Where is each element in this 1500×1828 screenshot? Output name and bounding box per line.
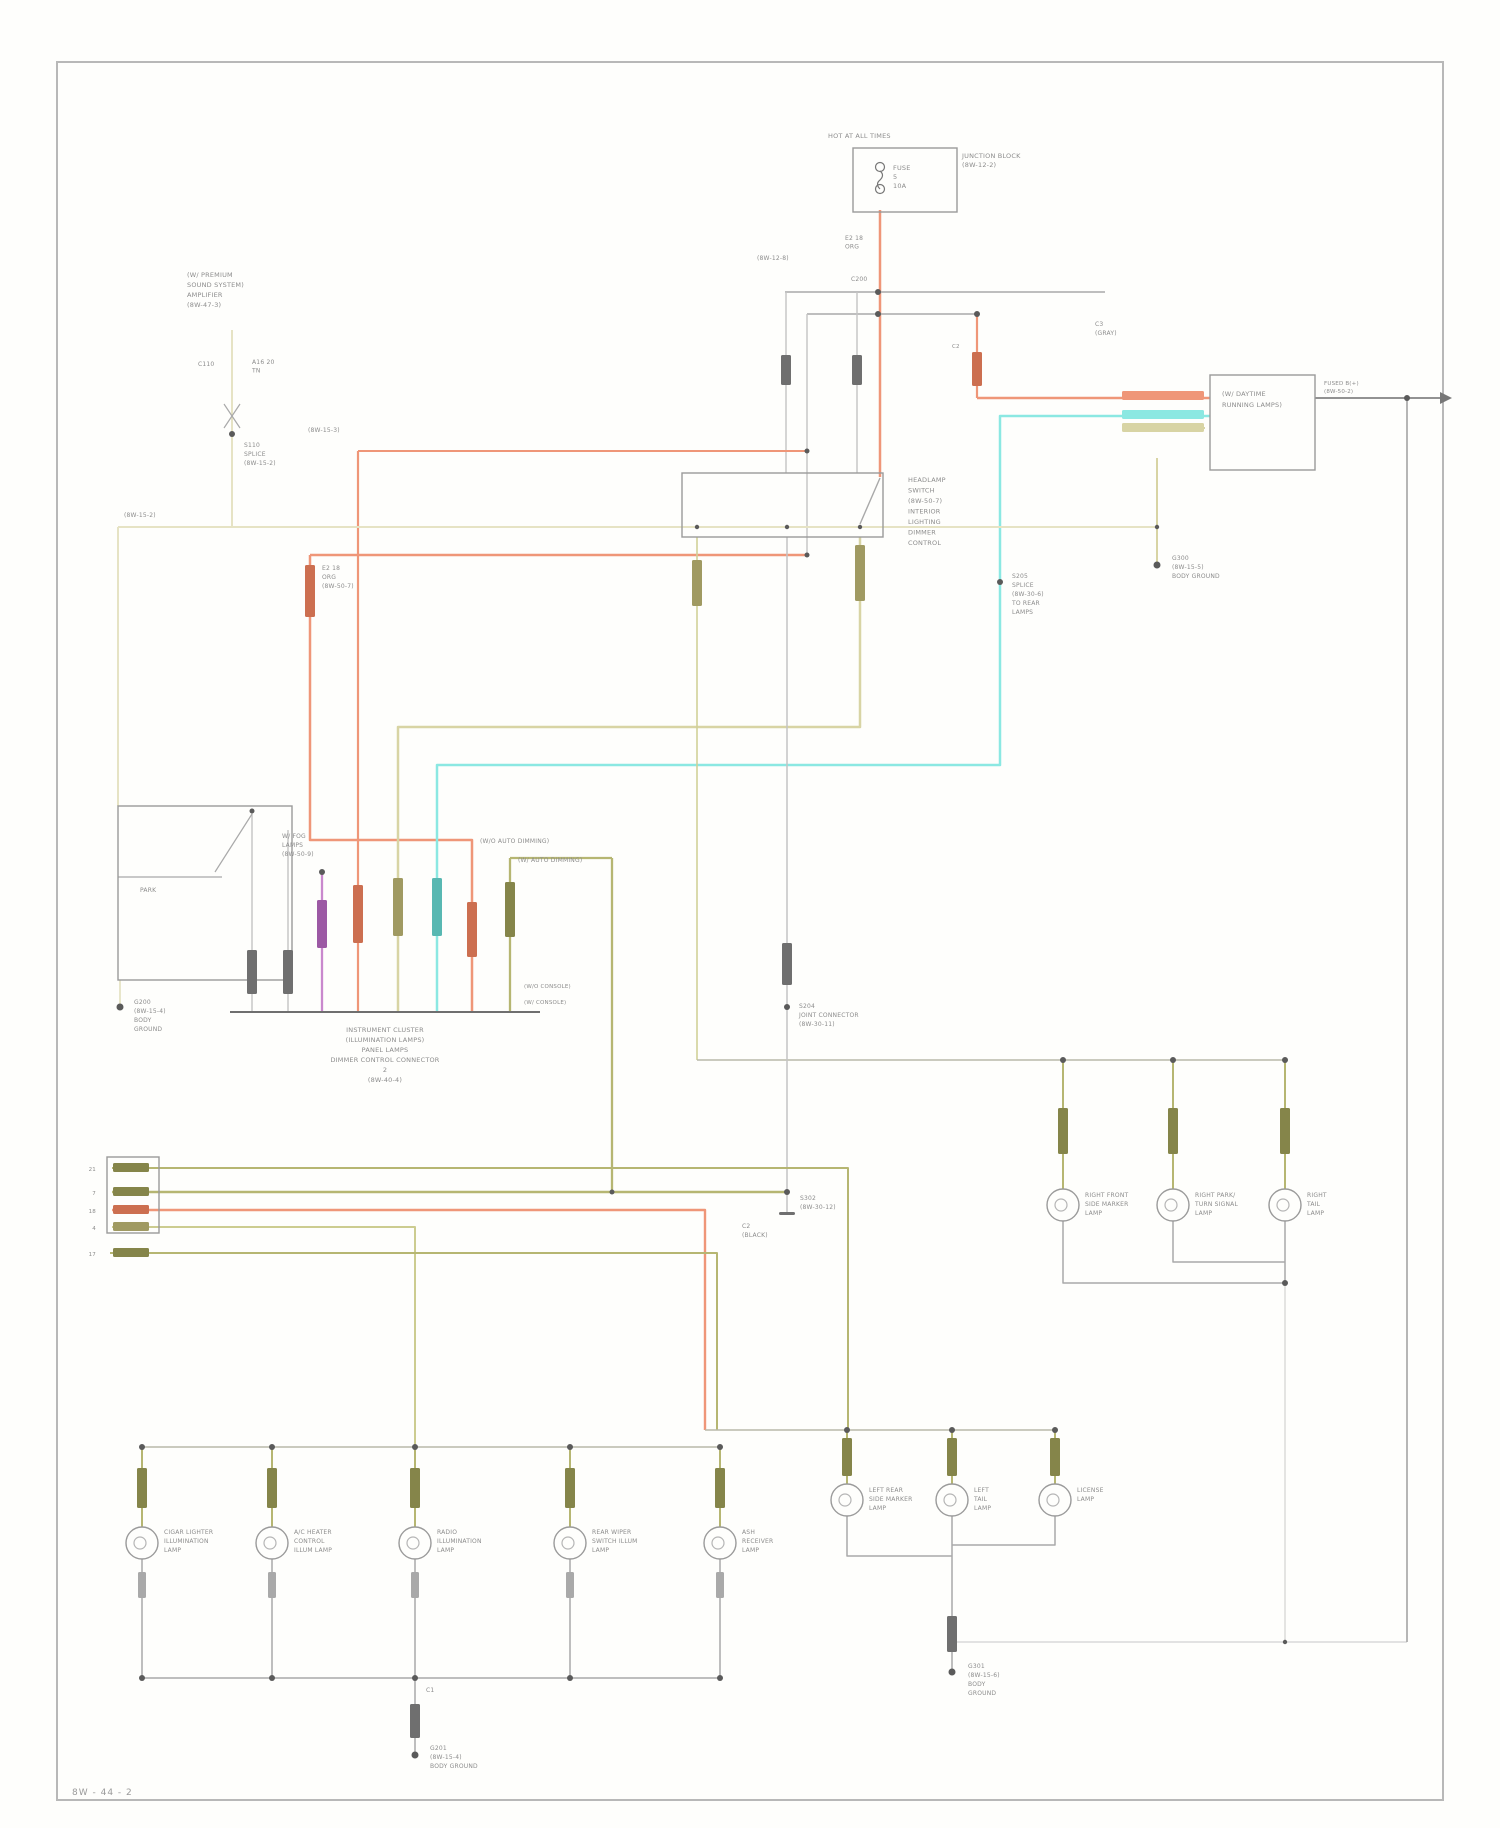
junction-dot — [695, 525, 699, 529]
pin-label-4: 4 — [92, 1226, 96, 1232]
right-tail-lamp — [1269, 1189, 1301, 1221]
illum-out-1 — [112, 1168, 848, 1430]
diagram-page-number: 8W - 44 - 2 — [72, 1788, 133, 1798]
junction-dot — [997, 579, 1003, 585]
inline-connector — [779, 1212, 795, 1215]
lamp-label-lr-1: LEFT REARSIDE MARKERLAMP — [869, 1487, 912, 1512]
lamp-label-bl-3: RADIOILLUMINATIONLAMP — [437, 1529, 482, 1554]
bulb-filament-icon — [839, 1494, 851, 1506]
inline-connector — [1122, 410, 1204, 419]
pin-label-1: 21 — [89, 1167, 96, 1173]
inline-connector — [1280, 1108, 1290, 1154]
bulb-filament-icon — [562, 1537, 574, 1549]
inline-connector — [565, 1468, 575, 1508]
lamp-label-bl-5: ASHRECEIVERLAMP — [742, 1529, 773, 1554]
bulb-filament-icon — [1277, 1199, 1289, 1211]
junction-dot — [567, 1444, 573, 1450]
park-lamp-wire-cyan — [437, 416, 1210, 1012]
pin-label-2: 7 — [92, 1191, 96, 1197]
junction-dot — [1154, 562, 1161, 569]
illum-out-5 — [110, 1253, 717, 1430]
fuse-element-icon — [878, 171, 883, 189]
junction-dot — [1283, 1640, 1287, 1644]
splice-s204-label: S204JOINT CONNECTOR(8W-30-11) — [798, 1003, 859, 1028]
inline-connector — [410, 1468, 420, 1508]
right-front-marker-lamp — [1047, 1189, 1079, 1221]
junction-dot — [717, 1444, 723, 1450]
inline-connector — [1050, 1438, 1060, 1476]
ref-8w15-label: (8W-15-2) — [124, 512, 156, 519]
inline-connector — [410, 1704, 420, 1738]
junction-dot — [717, 1675, 723, 1681]
ground-g200-label: G200(8W-15-4)BODYGROUND — [134, 999, 166, 1033]
wire-code-label-3: E2 18ORG(8W-50-7) — [322, 565, 354, 590]
junction-dot — [1060, 1057, 1066, 1063]
license-lamp — [1039, 1484, 1071, 1516]
ref-8w15b-label: (8W-15-3) — [308, 427, 340, 434]
pin-label-3: 18 — [89, 1209, 97, 1215]
junction-dot — [269, 1675, 275, 1681]
illum-out-3 — [112, 1210, 705, 1430]
inline-connector — [715, 1468, 725, 1508]
inline-connector — [267, 1468, 277, 1508]
junction-dot — [844, 1427, 850, 1433]
lamp-label-bl-1: CIGAR LIGHTERILLUMINATIONLAMP — [164, 1529, 213, 1554]
fuse-terminal-icon — [876, 163, 885, 172]
headlamp-switch-label: HEADLAMPSWITCH(8W-50-7)INTERIORLIGHTINGD… — [908, 476, 946, 547]
amplifier-label: (W/ PREMIUMSOUND SYSTEM)AMPLIFIER(8W-47-… — [187, 271, 244, 309]
junction-dot — [785, 525, 789, 529]
junction-dot — [784, 1004, 790, 1010]
radio-illum-lamp — [399, 1527, 431, 1559]
inline-connector — [852, 355, 862, 385]
junction-dot — [269, 1444, 275, 1450]
inline-connector — [305, 565, 315, 617]
fused-b-label: FUSED B(+)(8W-50-2) — [1324, 381, 1359, 395]
junction-dot — [412, 1444, 418, 1450]
left-rear-marker-lamp — [831, 1484, 863, 1516]
option-label-2: (W/ AUTO DIMMING) — [518, 857, 582, 864]
junction-dot — [610, 1190, 615, 1195]
junction-dot — [875, 289, 881, 295]
inline-connector — [268, 1572, 276, 1598]
junction-dot — [412, 1675, 418, 1681]
junction-dot — [858, 525, 862, 529]
ground-g300-label: G300(8W-15-5)BODY GROUND — [1172, 555, 1220, 580]
option-label-4: (W/ CONSOLE) — [524, 1000, 566, 1006]
ur-return-1 — [1063, 1221, 1285, 1283]
hot-at-all-times-label: HOT AT ALL TIMES — [828, 132, 891, 140]
lamp-label-ur-1: RIGHT FRONTSIDE MARKERLAMP — [1085, 1192, 1129, 1217]
inline-connector — [432, 878, 442, 936]
connector-c110-label: C110 — [198, 361, 214, 368]
junction-dot — [567, 1675, 573, 1681]
junction-dot — [1282, 1280, 1288, 1286]
bulb-filament-icon — [1047, 1494, 1059, 1506]
bulb-filament-icon — [407, 1537, 419, 1549]
inline-connector — [947, 1438, 957, 1476]
rear-wiper-switch-lamp — [554, 1527, 586, 1559]
right-park-lamp — [1157, 1189, 1189, 1221]
inline-connector — [1058, 1108, 1068, 1154]
pin-label-5: 17 — [89, 1252, 97, 1258]
junction-dot — [1155, 525, 1159, 529]
inline-connector — [137, 1468, 147, 1508]
inline-connector — [781, 355, 791, 385]
junction-dot — [139, 1675, 145, 1681]
inline-connector — [411, 1572, 419, 1598]
option-label-1: (W/O AUTO DIMMING) — [480, 838, 549, 845]
instrument-cluster-label: INSTRUMENT CLUSTER(ILLUMINATION LAMPS)PA… — [330, 1026, 439, 1084]
junction-block-label: JUNCTION BLOCK(8W-12-2) — [961, 152, 1021, 169]
junction-dot — [805, 553, 810, 558]
ash-receiver-lamp — [704, 1527, 736, 1559]
module-lever — [215, 814, 252, 872]
junction-ref-label: (8W-12-8) — [757, 255, 789, 262]
inline-connector — [283, 950, 293, 994]
left-tail-lamp — [936, 1484, 968, 1516]
bulb-filament-icon — [134, 1537, 146, 1549]
lamp-label-bl-2: A/C HEATERCONTROLILLUM LAMP — [294, 1529, 332, 1554]
option-label-3: (W/O CONSOLE) — [524, 984, 571, 990]
inline-connector — [247, 950, 257, 994]
junction-dot — [805, 449, 810, 454]
junction-dot — [949, 1427, 955, 1433]
wire-code-label-1: E2 18ORG — [845, 235, 863, 251]
lamp-label-bl-4: REAR WIPERSWITCH ILLUMLAMP — [592, 1529, 638, 1554]
inline-connector — [113, 1222, 149, 1231]
fuse-label: FUSE510A — [893, 164, 911, 190]
connector-label-c2: C2 — [952, 344, 960, 350]
ground-g201-label: G201(8W-15-4)BODY GROUND — [430, 1745, 478, 1770]
inline-connector — [113, 1187, 149, 1196]
inline-connector — [317, 900, 327, 948]
inline-connector — [1122, 391, 1204, 400]
inline-connector — [947, 1616, 957, 1652]
inline-connector — [782, 943, 792, 985]
junction-dot — [875, 311, 881, 317]
inline-connector — [566, 1572, 574, 1598]
splice-s302-label: S302(8W-30-12) — [800, 1195, 836, 1211]
lr-return-2 — [952, 1516, 1055, 1545]
inline-connector — [855, 545, 865, 601]
inline-connector — [505, 882, 515, 937]
junction-dot — [784, 1189, 790, 1195]
connector-c1-label: C1 — [426, 1687, 434, 1694]
inline-connector — [113, 1163, 149, 1172]
lamp-label-ur-3: RIGHTTAILLAMP — [1306, 1192, 1327, 1217]
junction-dot — [250, 809, 255, 814]
lamp-label-ur-2: RIGHT PARK/TURN SIGNALLAMP — [1194, 1192, 1238, 1217]
junction-dot — [1282, 1057, 1288, 1063]
splice-s110-label: S110SPLICE(8W-15-2) — [244, 442, 276, 467]
junction-dot — [974, 311, 980, 317]
junction-dot — [1170, 1057, 1176, 1063]
inline-connector — [393, 878, 403, 936]
inline-connector — [692, 560, 702, 606]
ur-return-2 — [1173, 1221, 1285, 1262]
junction-dot — [117, 1004, 124, 1011]
heater-control-lamp — [256, 1527, 288, 1559]
bulb-filament-icon — [1055, 1199, 1067, 1211]
inline-connector — [716, 1572, 724, 1598]
continuation-arrow-icon — [1440, 392, 1452, 404]
module-connector-label: C3(GRAY) — [1095, 321, 1117, 337]
junction-dot — [229, 431, 235, 437]
junction-dot — [1404, 395, 1410, 401]
lr-return-1 — [847, 1516, 952, 1556]
inline-connector — [1168, 1108, 1178, 1154]
junction-dot — [1052, 1427, 1058, 1433]
wire-code-label-2: A16 20TN — [251, 359, 274, 375]
fuse-block-box — [853, 148, 957, 212]
inline-connector — [113, 1248, 149, 1257]
bulb-filament-icon — [264, 1537, 276, 1549]
junction-dot — [139, 1444, 145, 1450]
lamp-label-lr-2: LEFTTAILLAMP — [973, 1487, 991, 1512]
splice-s205-label: S205SPLICE(8W-30-6)TO REARLAMPS — [1011, 573, 1044, 616]
ground-g301-label: G301(8W-15-6)BODYGROUND — [968, 1663, 1000, 1697]
wiring-diagram-page: HOT AT ALL TIMESFUSE510AJUNCTION BLOCK(8… — [0, 0, 1500, 1828]
inline-connector — [842, 1438, 852, 1476]
inline-connector — [353, 885, 363, 943]
inline-connector — [138, 1572, 146, 1598]
wiring-diagram-canvas: HOT AT ALL TIMESFUSE510AJUNCTION BLOCK(8… — [0, 0, 1500, 1828]
switch-lever — [860, 478, 880, 524]
connector-c2-black-label: C2(BLACK) — [742, 1223, 768, 1239]
junction-dot — [319, 869, 325, 875]
bulb-filament-icon — [944, 1494, 956, 1506]
module-contact-label: PARK — [140, 887, 157, 894]
bulb-filament-icon — [1165, 1199, 1177, 1211]
running-lamp-module-label: (W/ DAYTIMERUNNING LAMPS) — [1222, 390, 1282, 409]
inline-connector — [467, 902, 477, 957]
lamp-label-lr-3: LICENSELAMP — [1077, 1487, 1104, 1503]
junction-dot — [412, 1752, 419, 1759]
connector-label-c200: C200 — [851, 276, 867, 283]
junction-dot — [949, 1669, 956, 1676]
inline-connector — [113, 1205, 149, 1214]
illum-drop-2 — [310, 555, 472, 1012]
illum-out-4 — [112, 1227, 415, 1447]
bulb-filament-icon — [712, 1537, 724, 1549]
inline-connector — [972, 352, 982, 386]
cigar-lighter-lamp — [126, 1527, 158, 1559]
inline-connector — [1122, 423, 1204, 432]
